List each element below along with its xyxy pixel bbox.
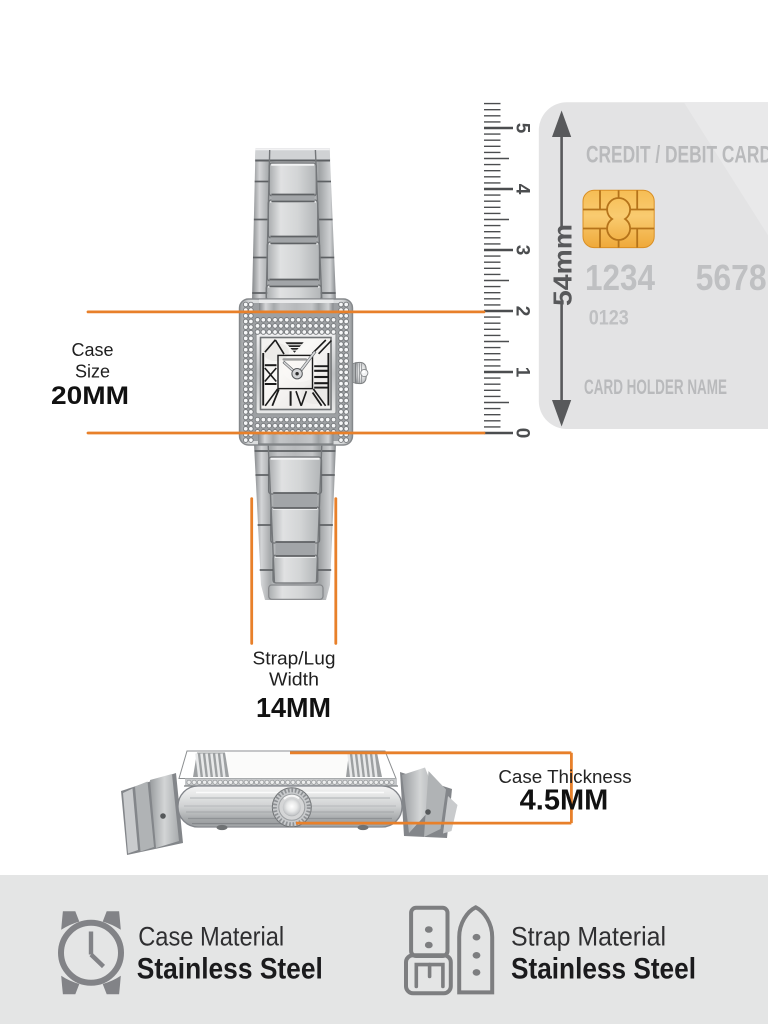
svg-text:Size: Size [75,362,110,382]
svg-text:CARD HOLDER NAME: CARD HOLDER NAME [584,375,727,399]
svg-text:Stainless Steel: Stainless Steel [511,952,696,985]
svg-text:0123: 0123 [589,307,629,330]
svg-text:1: 1 [512,367,533,378]
svg-text:5678: 5678 [696,257,767,298]
svg-text:Strap Material: Strap Material [511,922,666,952]
svg-text:3: 3 [512,245,533,256]
svg-text:Width: Width [269,669,319,689]
svg-text:Case: Case [71,340,113,360]
svg-text:5: 5 [512,123,533,134]
svg-text:4.5MM: 4.5MM [520,785,609,817]
svg-text:Strap/Lug: Strap/Lug [253,648,336,668]
svg-text:4: 4 [512,184,533,195]
svg-text:20MM: 20MM [51,382,129,410]
svg-text:54mm: 54mm [548,224,578,306]
svg-text:CREDIT / DEBIT CARD: CREDIT / DEBIT CARD [586,142,768,169]
svg-text:Case Material: Case Material [138,922,284,952]
svg-text:Stainless Steel: Stainless Steel [137,952,323,985]
svg-text:0: 0 [512,428,533,439]
svg-text:1234: 1234 [585,257,655,298]
svg-text:2: 2 [512,306,533,317]
svg-text:14MM: 14MM [256,692,331,723]
